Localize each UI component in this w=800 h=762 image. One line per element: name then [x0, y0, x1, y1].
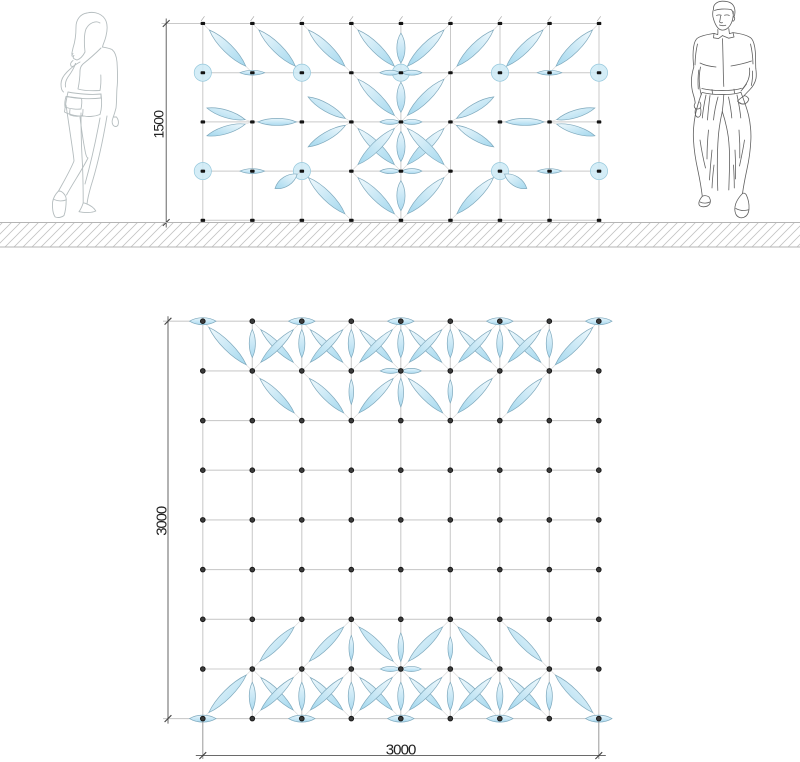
svg-text:3000: 3000	[386, 741, 417, 758]
svg-text:3000: 3000	[153, 506, 170, 536]
svg-text:1500: 1500	[150, 110, 166, 139]
